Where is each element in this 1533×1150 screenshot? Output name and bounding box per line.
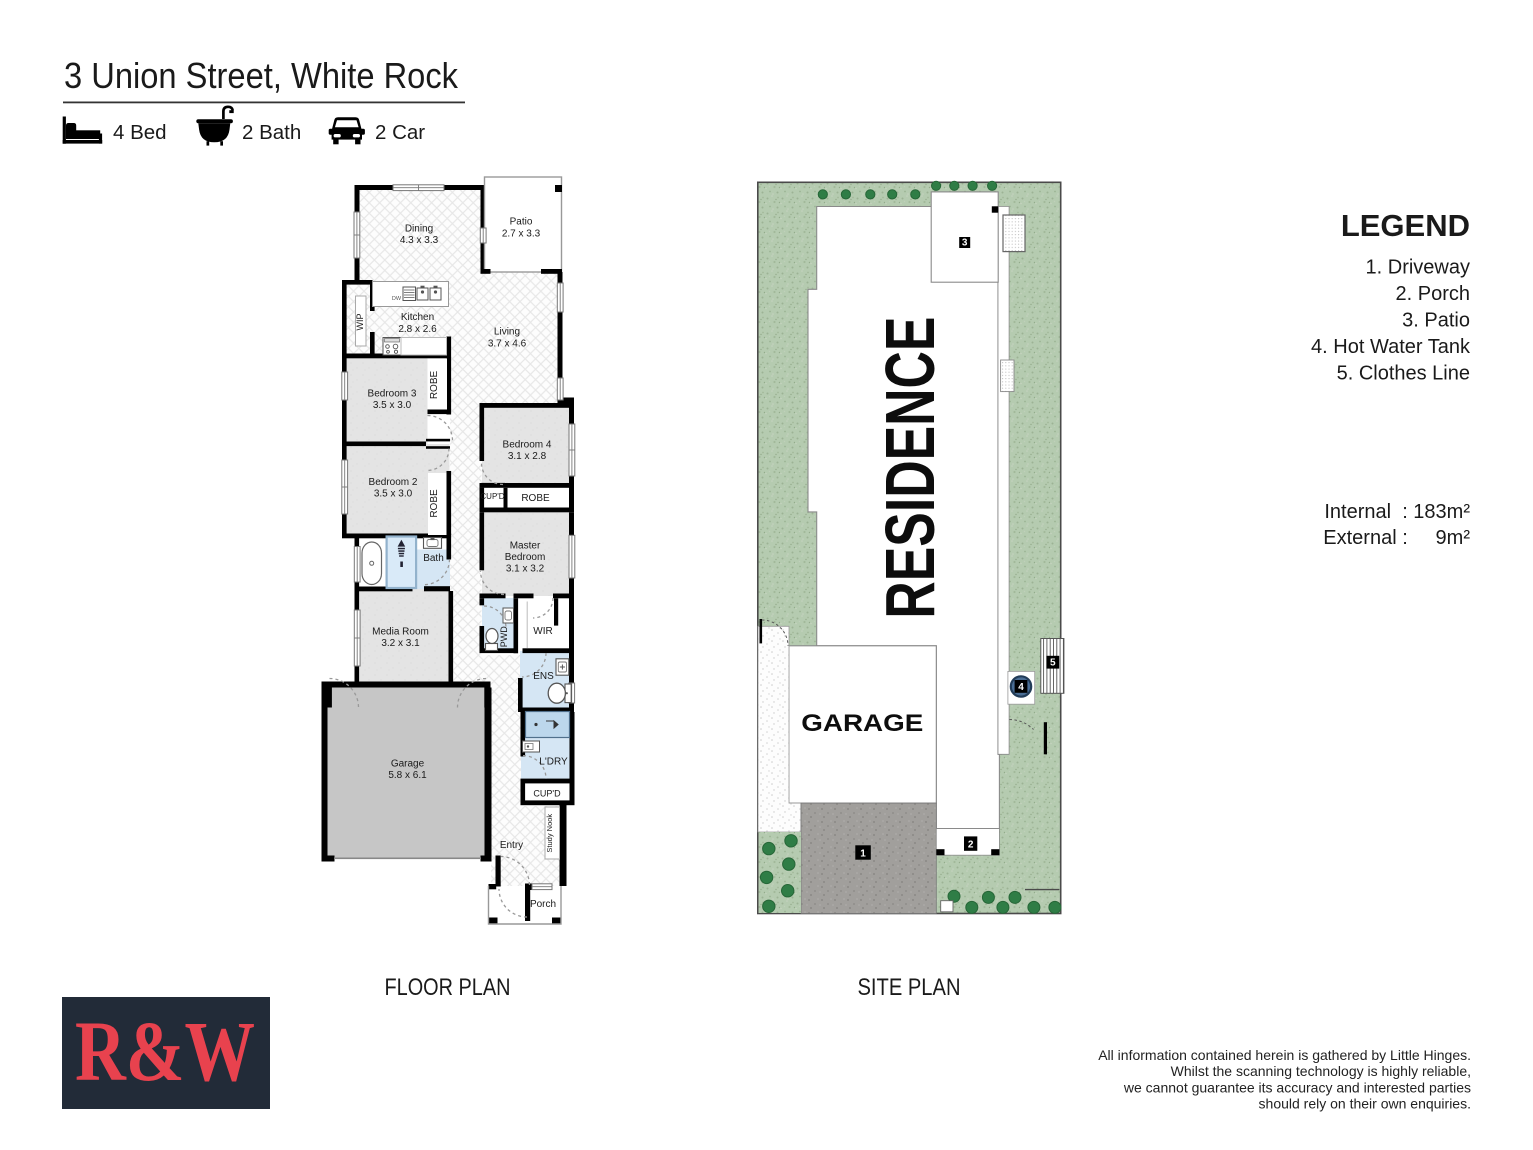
svg-text:PWD: PWD — [499, 626, 509, 647]
svg-text:1: 1 — [860, 848, 866, 859]
svg-text:5.8 x 6.1: 5.8 x 6.1 — [388, 770, 427, 781]
svg-text:3.1 x 3.2: 3.1 x 3.2 — [506, 563, 545, 574]
svg-text:Study Nook: Study Nook — [545, 814, 554, 853]
svg-text:2.8 x 2.6: 2.8 x 2.6 — [398, 324, 437, 335]
svg-text:should rely on their own enqui: should rely on their own enquiries. — [1259, 1096, 1471, 1112]
svg-text:Master: Master — [510, 540, 541, 551]
svg-text:CUP'D: CUP'D — [480, 492, 504, 501]
svg-text:Bedroom 2: Bedroom 2 — [369, 477, 418, 488]
svg-text:3.5 x 3.0: 3.5 x 3.0 — [373, 400, 412, 411]
svg-text:CUP'D: CUP'D — [533, 788, 561, 798]
svg-text:Porch: Porch — [530, 899, 556, 910]
svg-text:External : 9m²: External : 9m² — [1323, 527, 1470, 549]
svg-text:Bedroom 3: Bedroom 3 — [368, 389, 417, 400]
svg-text:ROBE: ROBE — [521, 493, 550, 504]
svg-text:Whilst the scanning technology: Whilst the scanning technology is highly… — [1171, 1063, 1471, 1079]
svg-text:Bath: Bath — [423, 553, 444, 564]
svg-text:Media Room: Media Room — [372, 626, 429, 637]
svg-text:Entry: Entry — [500, 840, 523, 851]
svg-text:All information contained here: All information contained herein is gath… — [1098, 1047, 1471, 1063]
svg-text:4 Bed: 4 Bed — [113, 121, 167, 144]
svg-text:Garage: Garage — [391, 758, 425, 769]
svg-text:ROBE: ROBE — [429, 489, 440, 518]
svg-text:4.3 x 3.3: 4.3 x 3.3 — [400, 235, 439, 246]
svg-text:Living: Living — [494, 327, 520, 338]
svg-text:we cannot guarantee its accura: we cannot guarantee its accuracy and int… — [1123, 1079, 1471, 1095]
svg-text:WIP: WIP — [355, 314, 365, 331]
svg-text:3.7 x 4.6: 3.7 x 4.6 — [488, 339, 527, 350]
svg-text:3: 3 — [962, 238, 968, 249]
svg-text:2 Bath: 2 Bath — [242, 121, 301, 144]
svg-text:Bedroom: Bedroom — [505, 552, 546, 563]
svg-text:Patio: Patio — [510, 216, 533, 227]
svg-text:R&W: R&W — [75, 1003, 255, 1099]
svg-text:GARAGE: GARAGE — [801, 710, 923, 737]
svg-text:L'DRY: L'DRY — [539, 756, 568, 767]
svg-text:2. Porch: 2. Porch — [1396, 283, 1470, 305]
svg-text:ENS: ENS — [533, 671, 554, 682]
svg-text:1. Driveway: 1. Driveway — [1366, 257, 1470, 279]
svg-text:2.7 x 3.3: 2.7 x 3.3 — [502, 229, 541, 240]
svg-text:3.1 x 2.8: 3.1 x 2.8 — [508, 451, 547, 462]
svg-text:SITE PLAN: SITE PLAN — [858, 974, 961, 1001]
svg-text:Internal : 183m²: Internal : 183m² — [1324, 501, 1470, 523]
svg-text:5. Clothes Line: 5. Clothes Line — [1337, 363, 1470, 385]
svg-text:5: 5 — [1050, 658, 1056, 669]
svg-text:3.5 x 3.0: 3.5 x 3.0 — [374, 489, 413, 500]
svg-text:DW: DW — [392, 296, 402, 302]
svg-text:4. Hot Water Tank: 4. Hot Water Tank — [1311, 336, 1471, 358]
svg-text:Dining: Dining — [405, 223, 433, 234]
svg-text:4: 4 — [1018, 682, 1024, 693]
svg-text:2 Car: 2 Car — [375, 121, 425, 144]
svg-text:ROBE: ROBE — [429, 371, 440, 400]
svg-text:Bedroom 4: Bedroom 4 — [503, 439, 552, 450]
svg-text:FLOOR PLAN: FLOOR PLAN — [385, 974, 511, 1001]
svg-text:3.2 x 3.1: 3.2 x 3.1 — [381, 638, 420, 649]
svg-text:2: 2 — [968, 839, 974, 850]
svg-text:3 Union Street, White Rock: 3 Union Street, White Rock — [64, 55, 459, 96]
svg-text:WIR: WIR — [533, 626, 552, 637]
svg-text:LEGEND: LEGEND — [1341, 208, 1470, 243]
svg-text:RESIDENCE: RESIDENCE — [871, 317, 949, 619]
svg-text:Kitchen: Kitchen — [401, 312, 434, 323]
svg-text:3. Patio: 3. Patio — [1402, 309, 1470, 331]
